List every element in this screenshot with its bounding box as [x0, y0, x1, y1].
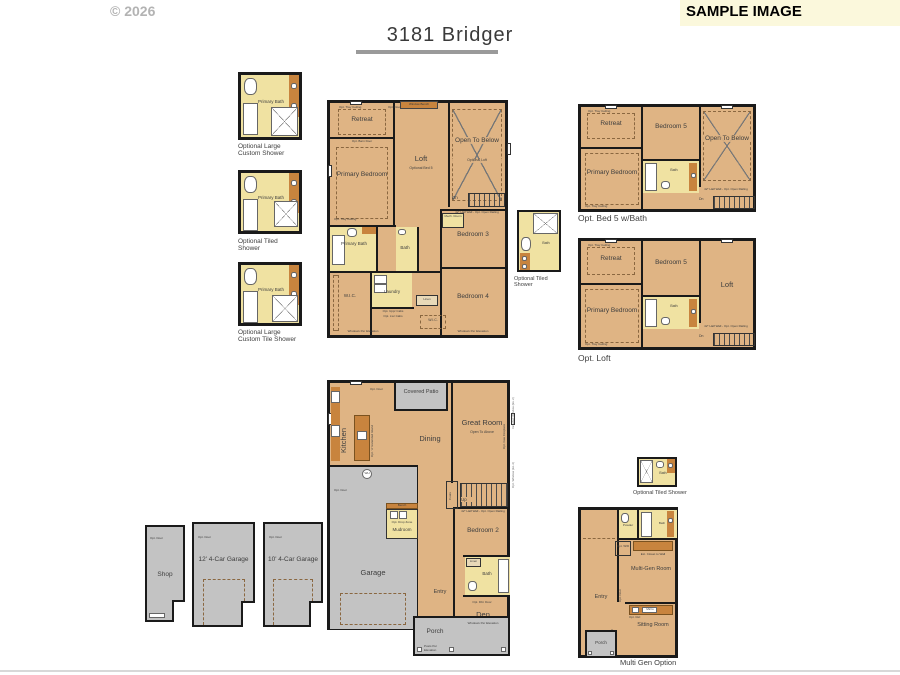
sink-icon	[291, 83, 297, 89]
toilet-icon	[347, 228, 357, 237]
note-half-wall: 42" Half Wall - Opt. Open Railing	[456, 510, 510, 513]
room-label-bedroom3: Bedroom 3	[442, 231, 504, 238]
porch-post	[501, 647, 506, 652]
porch-area: Porch	[585, 630, 617, 658]
room-label-dining: Dining	[408, 435, 452, 443]
note-opt-door: Opt. Door	[370, 388, 392, 391]
sink-icon	[691, 173, 696, 178]
wall-segment	[699, 107, 701, 187]
room-label-mudroom: Mudroom	[386, 527, 418, 532]
note-opt-door: Opt. Door	[619, 584, 626, 606]
sink-icon	[291, 272, 297, 278]
stairs-down	[713, 196, 755, 209]
caption-optional-large-custom-tile-shower: Optional Large Custom Tile Shower	[238, 329, 302, 344]
caption-opt-bed5: Opt. Bed 5 w/Bath	[578, 214, 698, 224]
wic-shelving	[333, 275, 339, 331]
covered-patio-area: Covered Patio	[394, 381, 448, 411]
room-label-open-to-below: Open To Below	[701, 135, 753, 142]
mid-tiled-shower-plan: Bath	[517, 210, 561, 272]
linen-label: Linen	[417, 298, 437, 301]
note-windows-per-elevation: Windows Per Elevation	[332, 330, 394, 333]
wall-segment	[617, 538, 677, 540]
wall-segment	[625, 602, 677, 604]
room-sublabel-optional-loft: Optional Loft	[450, 159, 504, 163]
note-opt-door: Opt. Door	[150, 537, 170, 540]
note-tray-ceiling: Opt. Tray Ceiling	[585, 343, 619, 346]
caption-optional-large-custom-shower: Optional Large Custom Shower	[238, 143, 300, 158]
corner-notch	[172, 600, 185, 622]
note-opt-window: Opt. Window (EL 2)	[512, 450, 518, 500]
upper-floor-plan: Window Bench Opt. Door Opt. Tray Ceiling…	[327, 100, 508, 338]
note-opt-door: Opt. Door	[334, 489, 356, 492]
tub-icon	[641, 512, 652, 537]
note-extended-island: Opt. 'A' Extended Island	[371, 419, 378, 463]
coats-closet: Coats	[446, 481, 458, 509]
corner-notch	[309, 601, 323, 627]
tub-icon	[243, 199, 258, 231]
linen-label: Linen	[467, 560, 480, 563]
toilet-icon	[621, 513, 629, 523]
note-tray-ceiling: Opt. Tray Ceiling	[588, 244, 620, 247]
note-tray-ceiling: Opt. Tray Ceiling	[339, 106, 371, 109]
washer-icon	[374, 275, 387, 284]
stairs-dn-label: Dn	[699, 335, 712, 339]
sink-icon	[522, 256, 527, 261]
window-mark	[328, 165, 332, 177]
note-half-wall: 42" Half Wall - Opt. Open Railing	[697, 325, 755, 328]
tub-icon	[243, 103, 258, 135]
sink-icon	[668, 463, 673, 468]
caption-optional-tiled-shower: Optional Tiled Shower	[514, 276, 566, 288]
hall-dashed-line	[583, 538, 615, 539]
coats-label: Coats	[449, 484, 456, 508]
corner-notch	[241, 601, 255, 627]
note-ext-closet: Ext. Closet to Wall	[631, 553, 675, 556]
porch-post	[610, 651, 614, 655]
room-label-kitchen: Kitchen	[340, 411, 353, 469]
wall-segment	[448, 103, 450, 207]
toilet-icon	[661, 317, 670, 325]
bath-option-plan-tiled-shower: Primary Bath	[238, 170, 302, 234]
room-label-powder: Powder	[617, 524, 639, 527]
note-gas-fireplace: Opt. Gas Fireplace	[503, 413, 509, 459]
window-mark	[350, 381, 362, 385]
room-label-retreat: Retreat	[587, 120, 635, 127]
window-mark	[507, 143, 511, 155]
garage-door-outline	[273, 579, 313, 625]
room-label-primary-bedroom: Primary Bedroom	[336, 171, 388, 178]
toilet-icon	[521, 237, 531, 251]
wall-segment	[453, 507, 455, 627]
sheet-bottom-edge	[0, 670, 900, 672]
window-mark	[721, 239, 733, 243]
vanity-counter	[362, 227, 376, 234]
garage-door-outline	[340, 593, 406, 625]
room-label-entry: Entry	[587, 594, 615, 600]
room-label-primary-bath: Primary Bath	[336, 241, 372, 246]
garage-10-option-plan: Opt. Door 10' 4-Car Garage	[263, 522, 323, 627]
room-label-bedroom5: Bedroom 5	[643, 123, 699, 130]
room-label-primary-bedroom: Primary Bedroom	[585, 169, 639, 176]
stairs-dn-label: Dn	[452, 195, 466, 200]
note-half-wall: 42" Half Wall - Opt. Open Railing	[448, 211, 506, 214]
stairs-up	[460, 483, 508, 507]
multigen-tiled-shower-plan: Bath	[637, 457, 677, 487]
toilet-icon	[244, 78, 257, 95]
room-label-primary-bedroom: Primary Bedroom	[585, 307, 639, 314]
note-opt-door: Opt. Door	[269, 536, 289, 539]
multigen-plan: Powder Bath Opt. W/D Ext. Closet to Wall…	[578, 507, 678, 658]
note-opt-ref: Opt. Ref.	[629, 616, 651, 619]
sample-banner: SAMPLE IMAGE	[680, 0, 900, 26]
room-label-bedroom4: Bedroom 4	[442, 293, 504, 300]
shower-icon	[533, 213, 558, 234]
tub-icon	[645, 163, 657, 191]
opt-loft-plan: Opt. Tray Ceiling Retreat Bedroom 5 Loft…	[578, 238, 756, 350]
room-label-bath: Bath	[661, 305, 687, 309]
room-label-wic: W.I.C.	[420, 319, 446, 323]
room-label-entry: Entry	[426, 589, 454, 595]
room-label-laundry: Laundry	[372, 289, 412, 294]
porch-area: Porch Posts Per Elevation Windows Per El…	[413, 616, 510, 656]
fridge-icon	[331, 391, 340, 403]
note-cabs-1: Opt. Uppr Cabs	[370, 310, 416, 313]
porch-post	[588, 651, 592, 655]
wall-segment	[440, 267, 505, 269]
note-dbl-door: Opt. Dbl. Door	[460, 601, 504, 604]
toilet-icon	[244, 176, 257, 193]
micro-label: Micro	[643, 608, 657, 611]
room-label-shop: Shop	[147, 571, 183, 578]
bath-option-plan-large-custom-tile-shower: Primary Bath	[238, 262, 302, 326]
garage-door-outline	[203, 579, 245, 625]
room-label-bath: Bath	[391, 245, 419, 250]
room-label-garage: Garage	[342, 569, 404, 577]
room-label-bedroom2: Bedroom 2	[456, 527, 510, 534]
wall-segment	[451, 383, 453, 483]
sample-banner-label: SAMPLE IMAGE	[686, 4, 896, 21]
opt-bed5-plan: Opt. Tray Ceiling Retreat Bedroom 5 Open…	[578, 104, 756, 212]
open-to-below-area	[703, 111, 751, 181]
bench-label: Bench	[387, 504, 417, 507]
wall-segment	[463, 595, 510, 597]
window-mark	[721, 105, 733, 109]
bath-option-plan-large-custom-shower: Primary Bath	[238, 72, 302, 140]
note-windows-per-elevation: Windows Per Elevation	[457, 622, 509, 625]
room-label-loft: Loft	[701, 281, 753, 289]
door-mark	[149, 613, 165, 618]
room-label-primary-bath: Primary Bath	[255, 99, 287, 104]
toilet-icon	[661, 181, 670, 189]
tub-icon	[332, 235, 345, 265]
note-opt-door: Opt. Door	[388, 106, 408, 109]
stairs-down	[468, 193, 505, 207]
linen-closet: Linen	[416, 295, 438, 306]
room-label-primary-bath: Primary Bath	[255, 195, 287, 200]
room-label-bath: Bath	[653, 522, 671, 525]
sink-icon	[691, 309, 696, 314]
room-label-bath: Bath	[661, 169, 687, 173]
dryer-icon	[399, 511, 407, 519]
linen-closet: Linen	[466, 558, 481, 567]
room-label-retreat: Retreat	[338, 116, 386, 123]
toilet-icon	[244, 268, 257, 285]
closet-shelf	[633, 541, 673, 551]
title-underline	[356, 50, 498, 54]
note-opt-door: Opt. Door	[198, 536, 218, 539]
room-label-open-to-below: Open To Below	[450, 137, 504, 144]
room-label-multigen-room: Multi-Gen Room	[627, 566, 675, 572]
porch-post	[449, 647, 454, 652]
shower-icon	[274, 201, 298, 227]
wall-segment	[581, 147, 643, 149]
room-label-bath: Bath	[533, 242, 559, 246]
note-tray-ceiling: Opt. Tray Ceiling	[334, 218, 370, 221]
room-label-mech-room: Mech. Room	[442, 215, 464, 218]
copyright-stamp: © 2026	[110, 4, 190, 20]
porch-post	[417, 647, 422, 652]
room-label-bath: Bath	[474, 571, 500, 576]
optwd-label: Opt. W/D	[616, 545, 630, 548]
open-to-below-area	[452, 109, 502, 201]
wall-segment	[641, 241, 643, 347]
room-sublabel-optional-bed5: Optional Bed 5	[394, 167, 448, 171]
room-label-10ft-garage: 10' 4-Car Garage	[267, 556, 319, 563]
sink-icon	[632, 607, 639, 613]
floorplan-sheet: © 2026 3181 Bridger SAMPLE IMAGE Primary…	[0, 0, 900, 675]
caption-multi-gen-option: Multi Gen Option	[620, 659, 720, 667]
room-label-sitting-room: Sitting Room	[631, 622, 675, 628]
water-heater-label: WH	[363, 472, 371, 475]
primary-tray-outline	[336, 147, 388, 219]
shower-icon	[271, 107, 298, 136]
note-posts-per-elevation: Posts Per Elevation	[424, 645, 448, 652]
water-heater-icon: WH	[362, 469, 372, 479]
room-label-retreat: Retreat	[587, 255, 635, 262]
room-label-porch: Porch	[419, 628, 451, 635]
primary-tray-outline	[585, 153, 639, 205]
tub-icon	[645, 299, 657, 327]
stairs-up-label: Up	[461, 497, 475, 502]
shop-option-plan: Opt. Door Shop	[145, 525, 185, 622]
main-floor-plan: Covered Patio Opt. Door Opt. 'A' Extende…	[327, 380, 510, 630]
tub-icon	[243, 291, 258, 323]
note-tray-ceiling: Opt. Tray Ceiling	[585, 205, 619, 208]
room-label-primary-bath: Primary Bath	[255, 287, 287, 292]
wall-segment	[393, 103, 395, 227]
note-barn-door: Opt. Barn Door	[342, 140, 382, 143]
room-label-bedroom5: Bedroom 5	[643, 259, 699, 266]
stairs-dn-label: Dn	[699, 198, 712, 202]
caption-optional-tiled-shower: Optional Tiled Shower	[238, 238, 300, 253]
primary-tray-outline	[585, 289, 639, 343]
room-label-porch: Porch	[587, 640, 615, 645]
toilet-icon	[468, 581, 477, 591]
note-included-window: Included Window (EL 2)	[512, 388, 518, 438]
wall-segment	[376, 227, 378, 273]
sink-icon	[522, 264, 527, 269]
garage-12-option-plan: Opt. Door 12' 4-Car Garage	[192, 522, 255, 627]
wall-segment	[581, 283, 643, 285]
microwave-icon: Micro	[642, 607, 657, 613]
room-label-12ft-garage: 12' 4-Car Garage	[196, 556, 251, 563]
toilet-icon	[656, 461, 664, 468]
note-half-wall: 42" Half Wall - Opt. Open Railing	[697, 188, 755, 191]
caption-opt-loft: Opt. Loft	[578, 354, 658, 364]
note-tray-ceiling: Opt. Tray Ceiling	[588, 110, 620, 113]
page-title: 3181 Bridger	[330, 24, 570, 46]
note-drop-zone: Opt. Drop Zone	[386, 521, 418, 524]
room-label-loft: Loft	[394, 155, 448, 163]
sink-icon	[291, 180, 297, 186]
washer-icon	[390, 511, 398, 519]
room-label-covered-patio: Covered Patio	[396, 389, 446, 395]
room-label-wic: W.I.C.	[330, 293, 370, 298]
shower-icon	[272, 295, 298, 322]
sink-icon	[398, 229, 406, 235]
optwd-closet: Opt. W/D	[615, 541, 631, 556]
island-sink-icon	[357, 431, 367, 440]
stairs-down	[713, 333, 755, 346]
note-cabs-2: Opt. Lwr Cabs	[370, 315, 416, 318]
note-windows-per-elevation: Windows Per Elevation	[442, 330, 504, 333]
room-label-bath: Bath	[652, 472, 674, 476]
caption-optional-tiled-shower: Optional Tiled Shower	[633, 490, 695, 496]
